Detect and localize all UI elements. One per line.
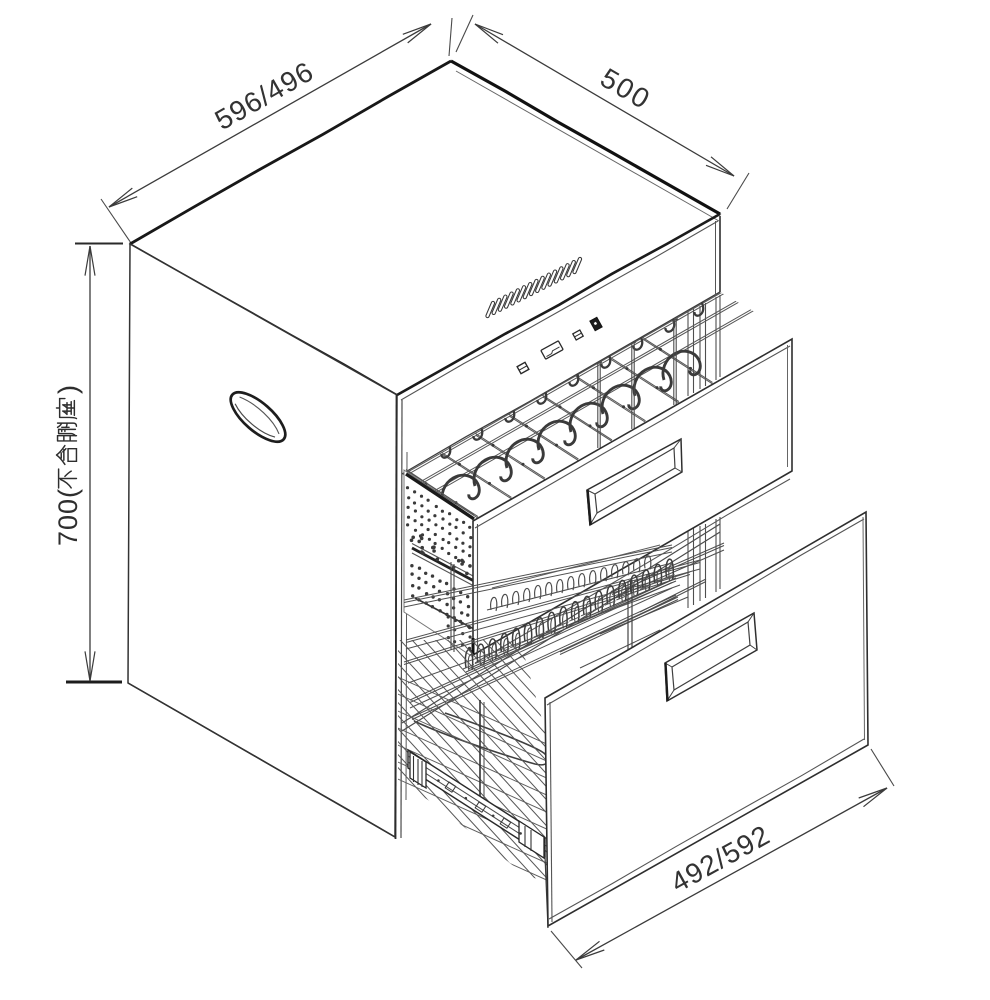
svg-text:700(: 700( [53,488,83,546]
svg-text:): ) [53,385,83,394]
